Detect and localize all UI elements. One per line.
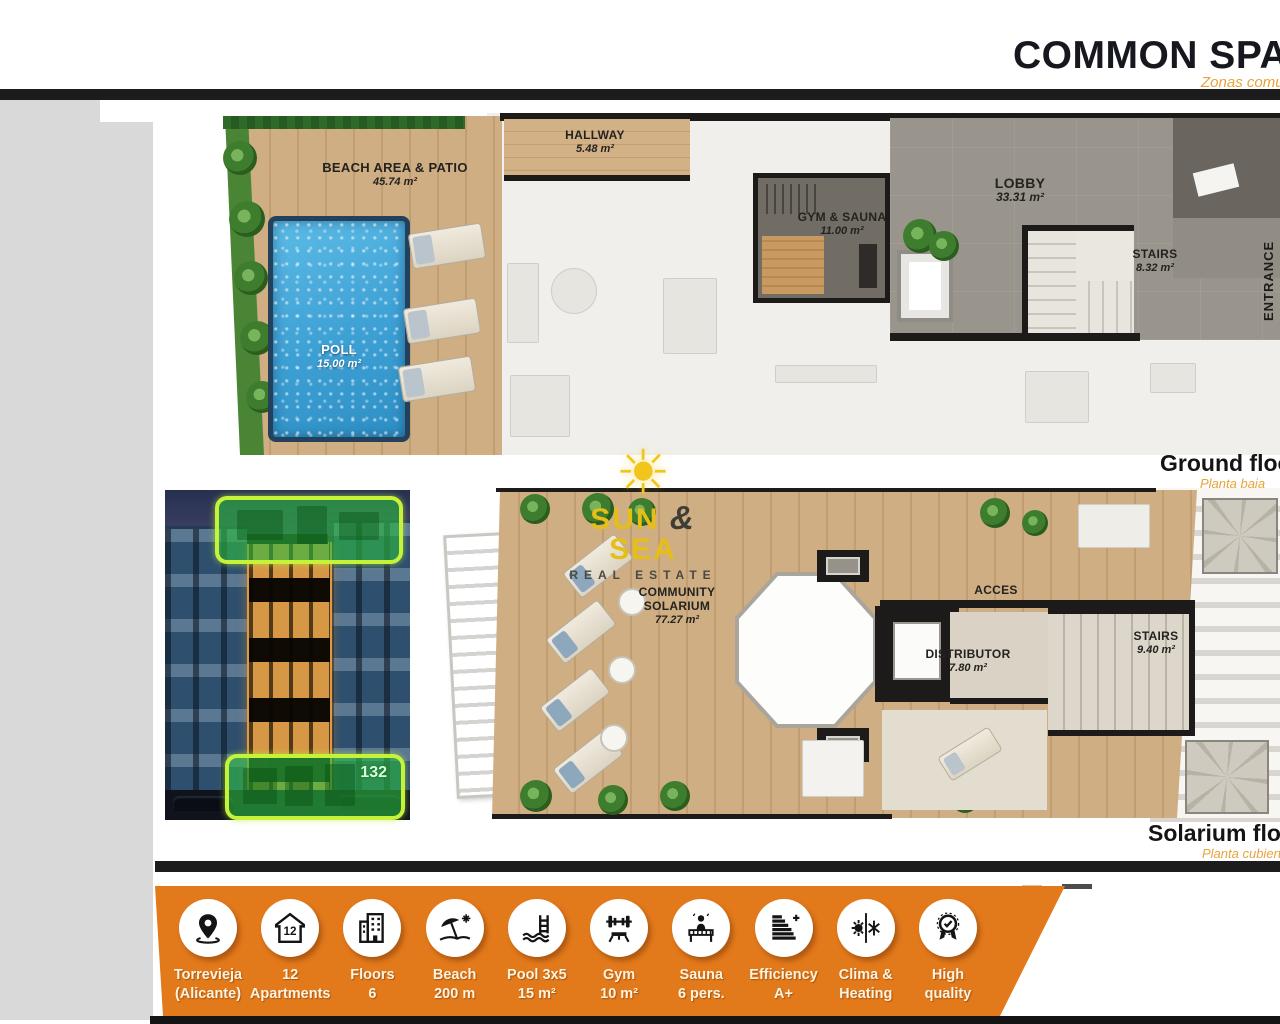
room-label-stairs-solarium: STAIRS 9.40 m² xyxy=(1110,630,1202,656)
sauna-benches xyxy=(762,236,824,294)
wall xyxy=(492,814,892,819)
gray-strip-notch xyxy=(100,100,153,122)
high-quality-icon xyxy=(919,899,977,957)
wall xyxy=(890,333,1140,341)
highlight-silhouette xyxy=(297,506,327,544)
clima-heating-icon xyxy=(837,899,895,957)
skylight-box xyxy=(817,550,869,582)
highlight-box-solarium xyxy=(215,496,403,564)
faded-furniture xyxy=(663,278,717,354)
faded-furniture xyxy=(1025,371,1089,423)
feature-clima: Clima &Heating xyxy=(825,899,907,1016)
highlight-silhouette xyxy=(237,510,283,540)
building-photo: 132 xyxy=(165,490,410,820)
faded-furniture xyxy=(510,375,570,437)
top-divider-bar xyxy=(0,89,1280,100)
ground-floor-plan: BEACH AREA & PATIO 45.74 m² POLL 15.00 m… xyxy=(215,113,1280,455)
bottom-divider-bar xyxy=(155,861,1280,872)
feature-line1: Floors xyxy=(350,966,394,985)
feature-line2: 10 m² xyxy=(600,985,638,1004)
faded-furniture xyxy=(1078,504,1150,548)
gym-equipment xyxy=(859,244,877,288)
room-label-gym: GYM & SAUNA 11.00 m² xyxy=(783,211,901,237)
highlight-silhouette xyxy=(325,764,355,806)
solarium-floor-caption: Solarium floor xyxy=(1148,820,1280,847)
room-label-entrance: ENTRANCE xyxy=(1261,161,1276,321)
feature-line2: Apartments xyxy=(250,985,331,1004)
plant-icon xyxy=(520,494,550,524)
rear-terrace xyxy=(882,710,1047,810)
plant-icon xyxy=(660,781,690,811)
feature-label: Torrevieja(Alicante) xyxy=(174,966,242,1004)
left-gray-strip xyxy=(0,100,153,1020)
footer-bar xyxy=(150,1016,1280,1024)
room-label-beach-area: BEACH AREA & PATIO 45.74 m² xyxy=(305,161,485,189)
plant-icon xyxy=(1022,510,1048,536)
faded-furniture xyxy=(551,268,597,314)
feature-line2: A+ xyxy=(749,985,818,1004)
page-title: COMMON SPACES xyxy=(1013,34,1280,78)
feature-label: 12Apartments xyxy=(250,966,331,1004)
stair-treads xyxy=(1076,281,1134,340)
round-table xyxy=(600,724,628,752)
feature-line2: quality xyxy=(925,985,972,1004)
solarium-floor-caption-es: Planta cubierta xyxy=(1202,846,1280,861)
feature-line2: 200 m xyxy=(433,985,477,1004)
feature-line1: Sauna xyxy=(678,966,725,985)
feature-efficiency: EfficiencyA+ xyxy=(743,899,825,1016)
sun-icon: ☀ xyxy=(558,448,728,501)
feature-label: Pool 3x515 m² xyxy=(507,966,567,1004)
gym-sauna-room xyxy=(753,173,890,303)
stairs-room-solarium xyxy=(1048,608,1195,736)
feature-gym: Gym10 m² xyxy=(578,899,660,1016)
feature-pool: Pool 3x515 m² xyxy=(496,899,578,1016)
pool-ladder-icon xyxy=(508,899,566,957)
feature-quality: Highquality xyxy=(907,899,989,1016)
sun-lounger xyxy=(937,726,1003,782)
room-label-lobby: LOBBY 33.31 m² xyxy=(960,175,1080,205)
highlight-silhouette xyxy=(339,512,379,540)
feature-label: Floors6 xyxy=(350,966,394,1004)
sun-and-sea-logo: ☀ SUN & SEA REAL ESTATE xyxy=(558,448,728,582)
logo-sea-word: SEA xyxy=(609,533,677,566)
pool: POLL 15.00 m² xyxy=(268,216,410,442)
feature-line2: (Alicante) xyxy=(174,985,242,1004)
room-label-hallway: HALLWAY 5.48 m² xyxy=(515,129,675,155)
logo-ampersand: & xyxy=(670,499,696,536)
room-label-pool: POLL 15.00 m² xyxy=(273,343,405,371)
skylight-box-inner xyxy=(826,557,860,575)
entrance-door xyxy=(1193,163,1240,196)
lobby-stairs xyxy=(1022,225,1134,340)
logo-name: SUN & SEA xyxy=(558,501,728,565)
faded-furniture xyxy=(802,740,864,797)
feature-line1: 12 xyxy=(250,966,331,985)
skylight-octagon-inner xyxy=(739,576,873,724)
feature-line1: Gym xyxy=(600,966,638,985)
logo-tagline: REAL ESTATE xyxy=(558,568,728,582)
street-number-badge: 132 xyxy=(360,764,387,782)
feature-sauna: Sauna6 pers. xyxy=(660,899,742,1016)
feature-apartments: 12 12Apartments xyxy=(249,899,331,1016)
feature-location: Torrevieja(Alicante) xyxy=(167,899,249,1016)
beach-umbrella-icon xyxy=(426,899,484,957)
round-table xyxy=(608,656,636,684)
room-label-stairs-ground: STAIRS 8.32 m² xyxy=(1100,248,1210,274)
room-label-acces: ACCES xyxy=(946,584,1046,598)
ground-floor-caption: Ground floor xyxy=(1160,450,1280,477)
feature-line2: 6 xyxy=(350,985,394,1004)
skylight-octagon xyxy=(735,572,877,728)
feature-floors: Floors6 xyxy=(331,899,413,1016)
feature-label: Gym10 m² xyxy=(600,966,638,1004)
logo-sun-word: SUN xyxy=(590,503,659,536)
feature-line1: Torrevieja xyxy=(174,966,242,985)
gym-weights-icon xyxy=(590,899,648,957)
highlight-silhouette xyxy=(243,768,277,804)
palm-tree-icon xyxy=(234,261,268,295)
plant-icon xyxy=(520,780,552,812)
highlight-silhouette xyxy=(285,766,313,806)
room-label-distributor: DISTRIBUTOR 7.80 m² xyxy=(898,648,1038,674)
feature-label: Highquality xyxy=(925,966,972,1004)
sauna-person-icon xyxy=(672,899,730,957)
feature-line2: 6 pers. xyxy=(678,985,725,1004)
feature-label: EfficiencyA+ xyxy=(749,966,818,1004)
building-floors-icon xyxy=(343,899,401,957)
faded-furniture xyxy=(1150,363,1196,393)
palm-tree-icon xyxy=(223,141,257,175)
house-number-icon: 12 xyxy=(261,899,319,957)
feature-line1: High xyxy=(925,966,972,985)
location-pin-icon xyxy=(179,899,237,957)
feature-label: Sauna6 pers. xyxy=(678,966,725,1004)
feature-line2: 15 m² xyxy=(507,985,567,1004)
hedge xyxy=(223,116,465,129)
cropped-element-dash xyxy=(1062,884,1092,889)
feature-line1: Efficiency xyxy=(749,966,818,985)
stair-treads xyxy=(1028,231,1076,340)
feature-line1: Clima & xyxy=(839,966,893,985)
plant-icon xyxy=(980,498,1010,528)
feature-label: Clima &Heating xyxy=(839,966,893,1004)
plant-icon xyxy=(598,785,628,815)
plant-icon xyxy=(929,231,959,261)
energy-efficiency-icon xyxy=(755,899,813,957)
feature-label: Beach200 m xyxy=(433,966,477,1004)
feature-line2: Heating xyxy=(839,985,893,1004)
faded-furniture xyxy=(507,263,539,343)
feature-beach: Beach200 m xyxy=(414,899,496,1016)
svg-text:12: 12 xyxy=(284,925,297,938)
roof-umbrella xyxy=(1185,740,1269,814)
faded-furniture xyxy=(775,365,877,383)
features-bar: Torrevieja(Alicante) 12 12Apartments Flo… xyxy=(155,886,1065,1016)
feature-line1: Beach xyxy=(433,966,477,985)
feature-line1: Pool 3x5 xyxy=(507,966,567,985)
palm-tree-icon xyxy=(229,201,265,237)
brochure-page: COMMON SPACES Zonas comunes BEACH AREA &… xyxy=(0,0,1280,1024)
roof-umbrella xyxy=(1202,498,1278,574)
room-label-solarium: COMMUNITY SOLARIUM 77.27 m² xyxy=(612,586,742,626)
highlight-box-entrance: 132 xyxy=(225,754,405,820)
